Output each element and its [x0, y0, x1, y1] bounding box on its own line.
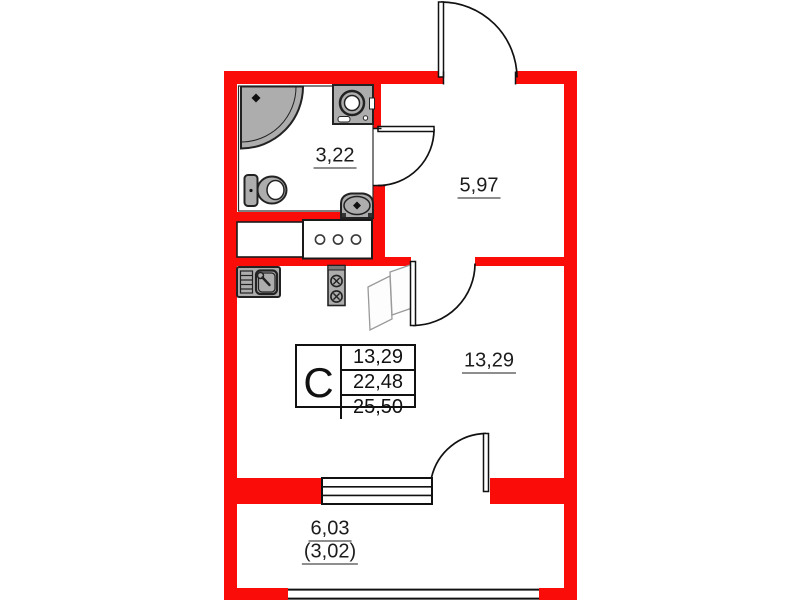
- balcony-glazing-icon: [288, 589, 539, 599]
- plan-graphics-layer: [0, 0, 800, 600]
- kitchen-sink-icon: [237, 267, 280, 297]
- balcony-reduced-area-label: (3,02): [302, 542, 358, 565]
- living-room-area-label: 13,29: [462, 351, 516, 374]
- living-room-door: [411, 262, 476, 326]
- bathroom-area-label: 3,22: [314, 146, 357, 169]
- duct-vents-icon: [315, 235, 360, 244]
- balcony-window-icon: [322, 478, 432, 504]
- unit-total-area: 25,50: [342, 394, 414, 419]
- shower-icon: [241, 87, 303, 149]
- balcony-area-label: 6,03: [309, 519, 352, 542]
- bathroom-door: [373, 127, 434, 186]
- washing-machine-icon: [333, 85, 375, 124]
- balcony-door: [432, 434, 489, 492]
- hallway-area-label: 5,97: [458, 176, 501, 199]
- unit-type-letter: C: [297, 346, 342, 419]
- folding-door-icon: [368, 264, 415, 330]
- toilet-icon: [245, 175, 287, 206]
- unit-apartment-area: 22,48: [342, 369, 414, 394]
- unit-area-table: C 13,29 22,48 25,50: [295, 344, 416, 408]
- entrance-door: [439, 2, 518, 85]
- stove-icon: [328, 266, 345, 306]
- floor-plan: 3,22 5,97 13,29 6,03 (3,02) C 13,29 22,4…: [0, 0, 800, 600]
- bathroom-sink-icon: [341, 194, 373, 219]
- unit-living-area: 13,29: [342, 346, 414, 369]
